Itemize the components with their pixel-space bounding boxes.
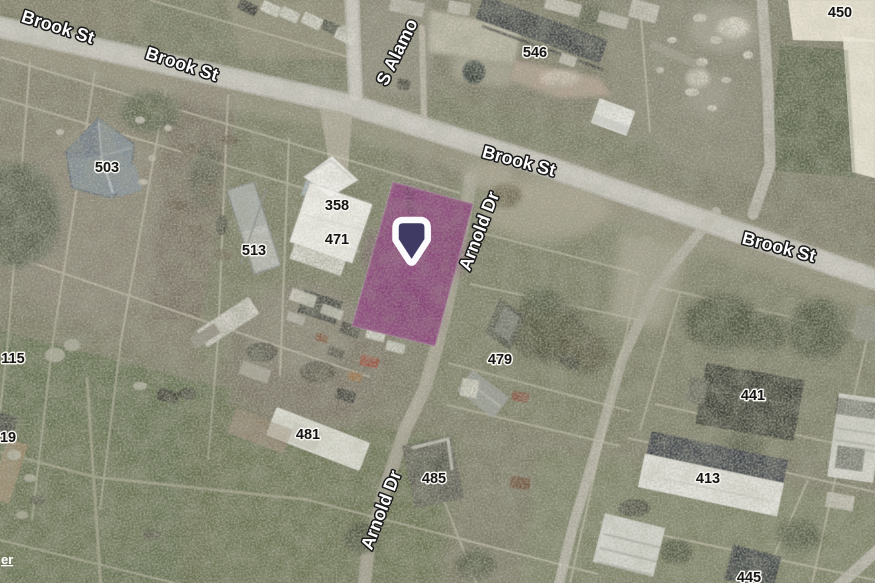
svg-text:450: 450 <box>828 5 852 21</box>
svg-text:115: 115 <box>1 351 24 367</box>
svg-text:19: 19 <box>0 430 16 446</box>
svg-text:445: 445 <box>737 570 761 583</box>
svg-text:503: 503 <box>95 160 119 176</box>
svg-text:441: 441 <box>741 388 765 404</box>
svg-text:513: 513 <box>242 243 266 259</box>
svg-text:479: 479 <box>488 352 512 368</box>
svg-text:485: 485 <box>422 471 446 487</box>
svg-text:358: 358 <box>325 198 349 214</box>
svg-text:er: er <box>1 552 13 567</box>
svg-text:471: 471 <box>325 232 349 248</box>
svg-text:481: 481 <box>296 427 320 443</box>
svg-text:546: 546 <box>523 45 547 61</box>
svg-text:413: 413 <box>696 471 720 487</box>
